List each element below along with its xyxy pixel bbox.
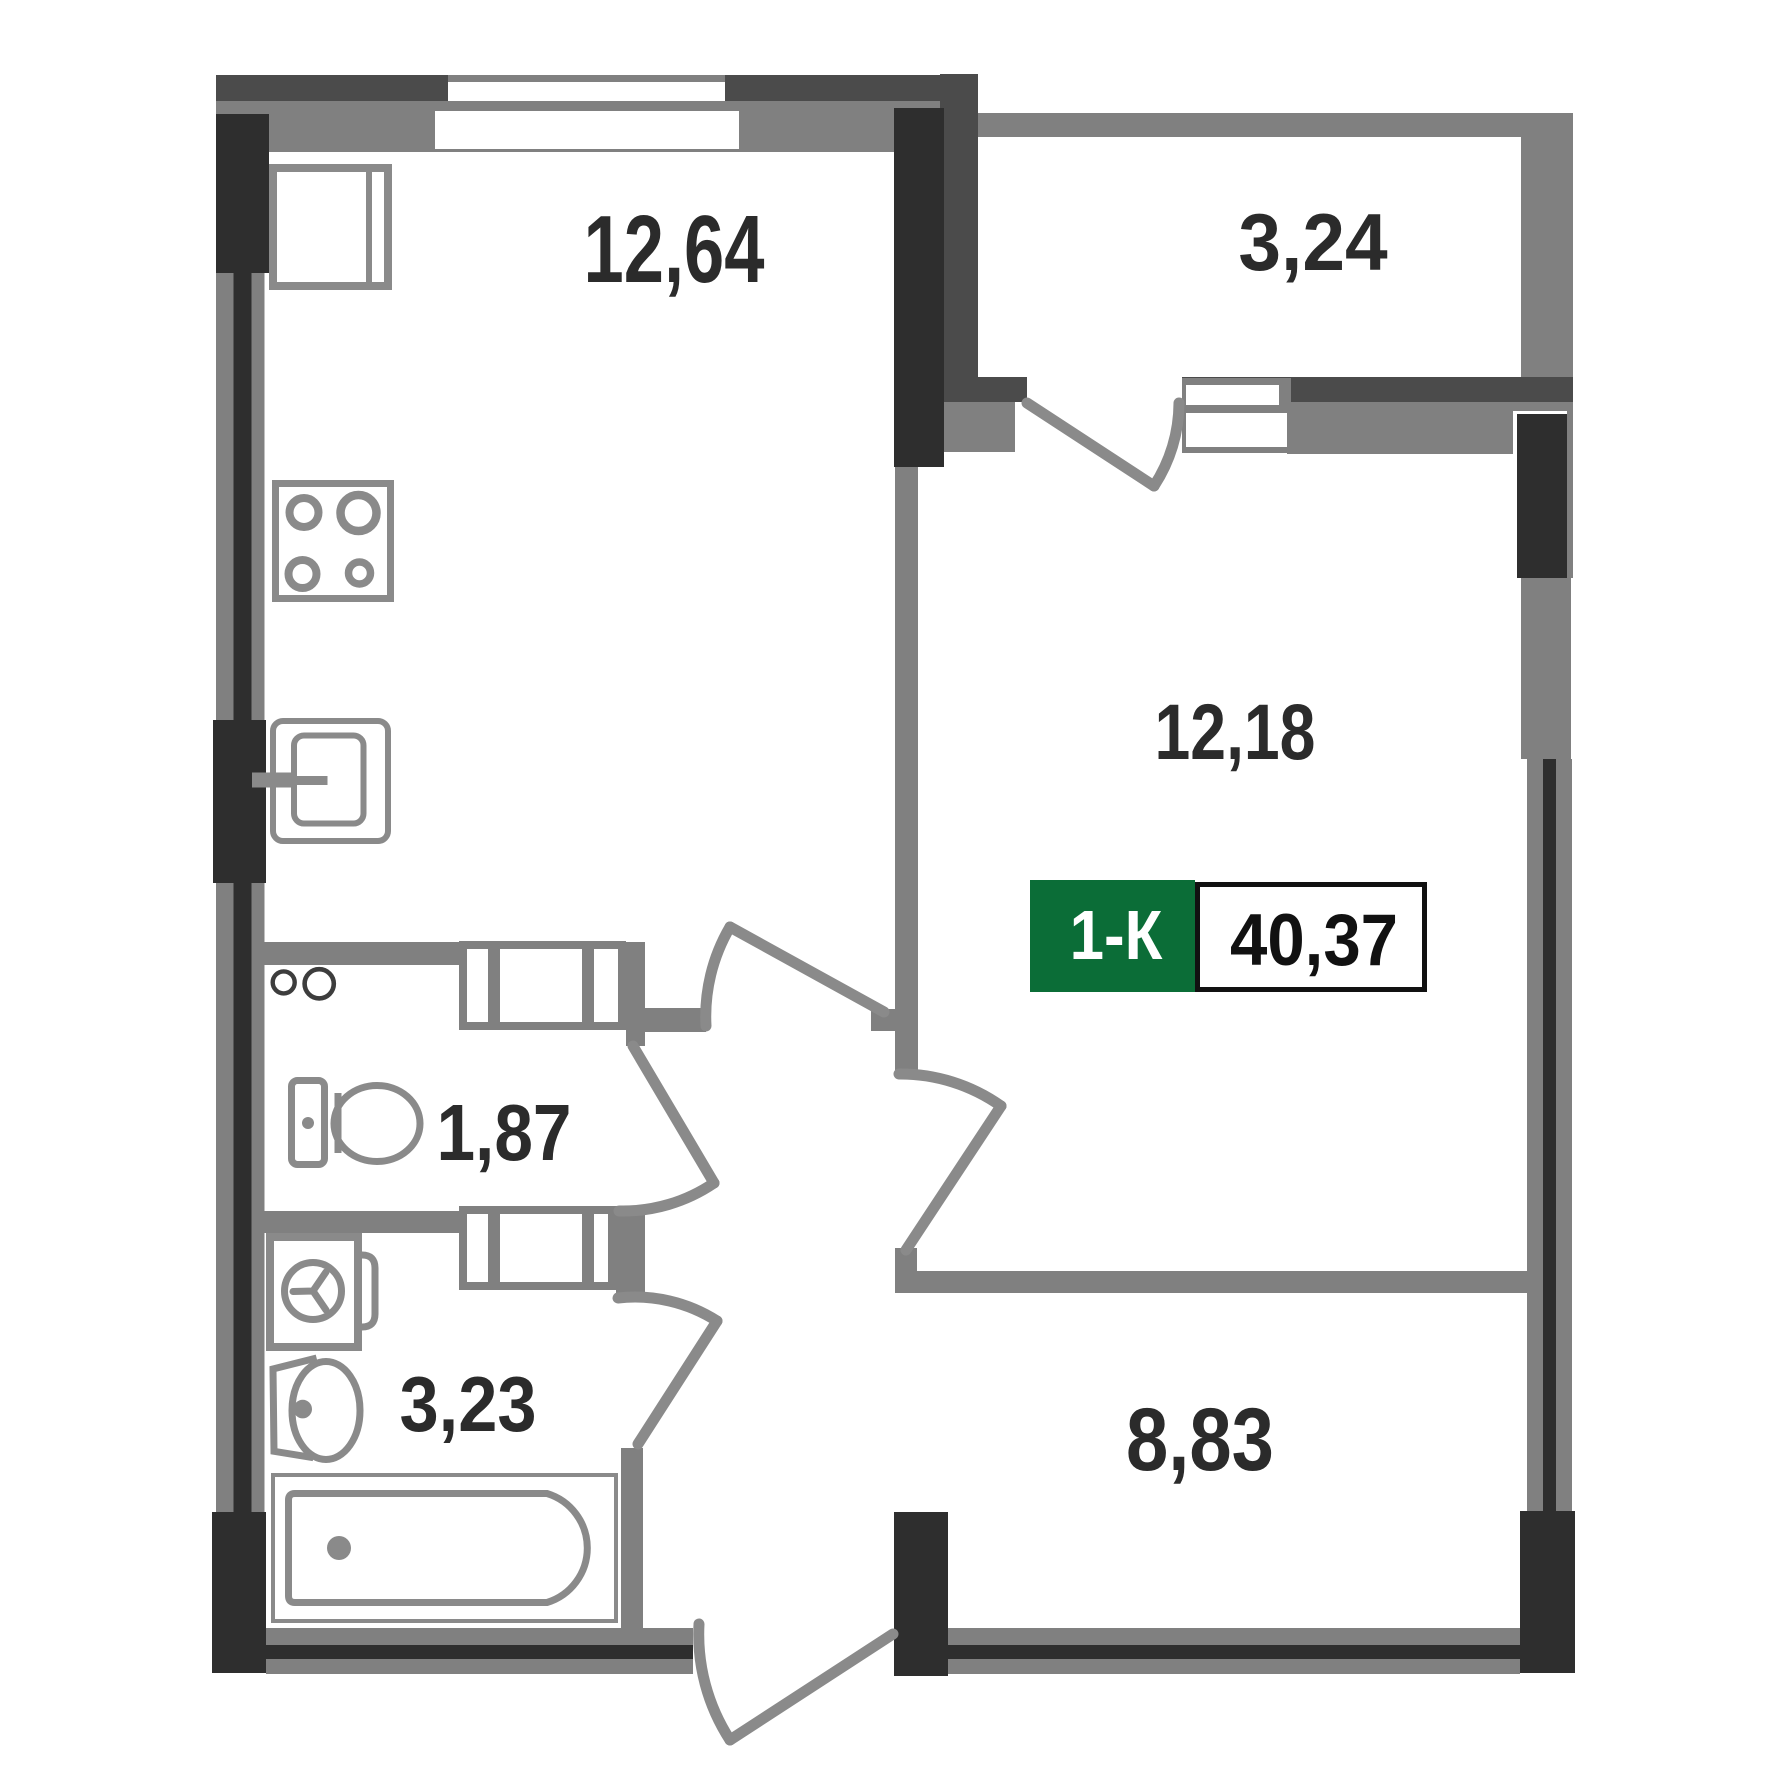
svg-text:12,64: 12,64 <box>584 195 765 302</box>
svg-text:8,83: 8,83 <box>1126 1389 1274 1489</box>
svg-text:1-К: 1-К <box>1070 895 1163 973</box>
svg-text:40,37: 40,37 <box>1230 899 1398 980</box>
svg-text:3,24: 3,24 <box>1238 197 1387 287</box>
svg-text:12,18: 12,18 <box>1155 689 1316 777</box>
svg-text:3,23: 3,23 <box>400 1361 537 1448</box>
svg-text:1,87: 1,87 <box>436 1088 571 1177</box>
